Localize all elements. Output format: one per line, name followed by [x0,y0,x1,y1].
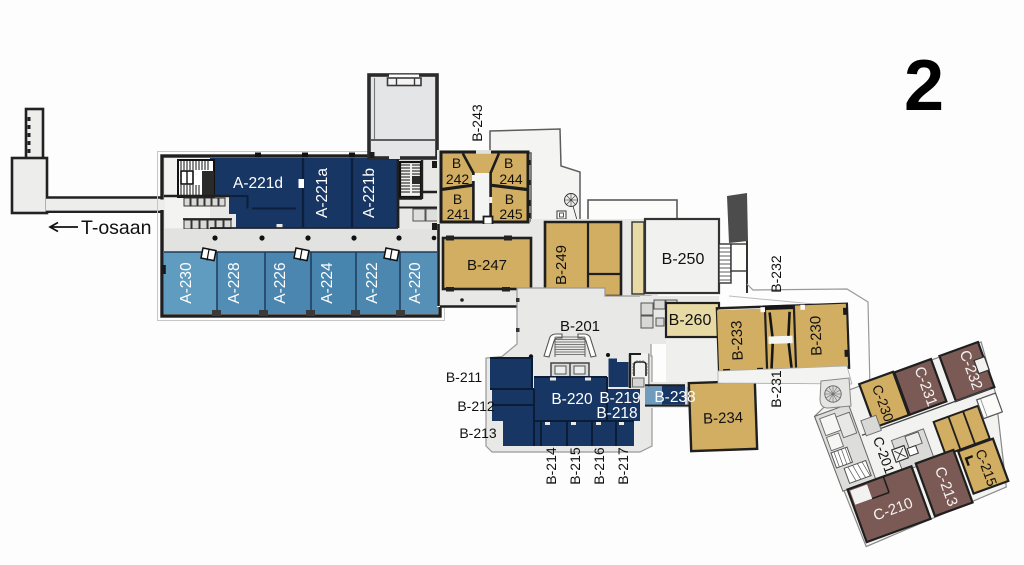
svg-text:B-234: B-234 [703,409,744,427]
svg-text:B-212: B-212 [457,398,495,414]
svg-text:244: 244 [499,171,523,187]
svg-text:B: B [505,191,514,207]
svg-text:B-243: B-243 [469,104,485,142]
svg-text:A-224: A-224 [319,262,336,304]
svg-text:B-238: B-238 [654,389,695,406]
svg-text:B-214: B-214 [543,447,559,485]
svg-text:242: 242 [446,171,470,187]
svg-text:B-249: B-249 [553,245,570,285]
svg-text:A-221b: A-221b [361,168,378,218]
svg-text:B-260: B-260 [669,312,712,329]
svg-text:T-osaan: T-osaan [81,217,151,239]
svg-text:B-217: B-217 [615,447,631,485]
svg-text:B-201: B-201 [560,318,600,335]
svg-text:B-211: B-211 [446,369,483,385]
svg-text:A-222: A-222 [364,262,381,303]
svg-text:B-247: B-247 [467,257,507,274]
svg-text:245: 245 [499,206,523,222]
svg-text:B-215: B-215 [567,447,583,485]
svg-text:A-221d: A-221d [233,175,283,192]
svg-text:B: B [452,155,461,171]
svg-text:A-221a: A-221a [314,168,331,218]
svg-text:B-216: B-216 [591,447,607,485]
svg-text:A-226: A-226 [272,262,289,303]
svg-text:B-250: B-250 [662,251,705,268]
svg-text:B-220: B-220 [551,391,593,408]
svg-text:B-232: B-232 [768,255,784,293]
svg-text:B-231: B-231 [768,370,784,408]
svg-text:2: 2 [904,46,944,126]
svg-text:A-230: A-230 [178,262,195,304]
svg-text:B: B [504,155,513,171]
svg-text:B: B [453,191,462,207]
svg-text:B-230: B-230 [807,316,825,357]
svg-text:241: 241 [447,206,471,222]
svg-text:A-220: A-220 [407,262,424,304]
svg-text:B-233: B-233 [728,320,746,361]
svg-text:B-218: B-218 [596,405,637,422]
svg-text:B-213: B-213 [459,425,497,441]
svg-text:A-228: A-228 [226,262,243,303]
